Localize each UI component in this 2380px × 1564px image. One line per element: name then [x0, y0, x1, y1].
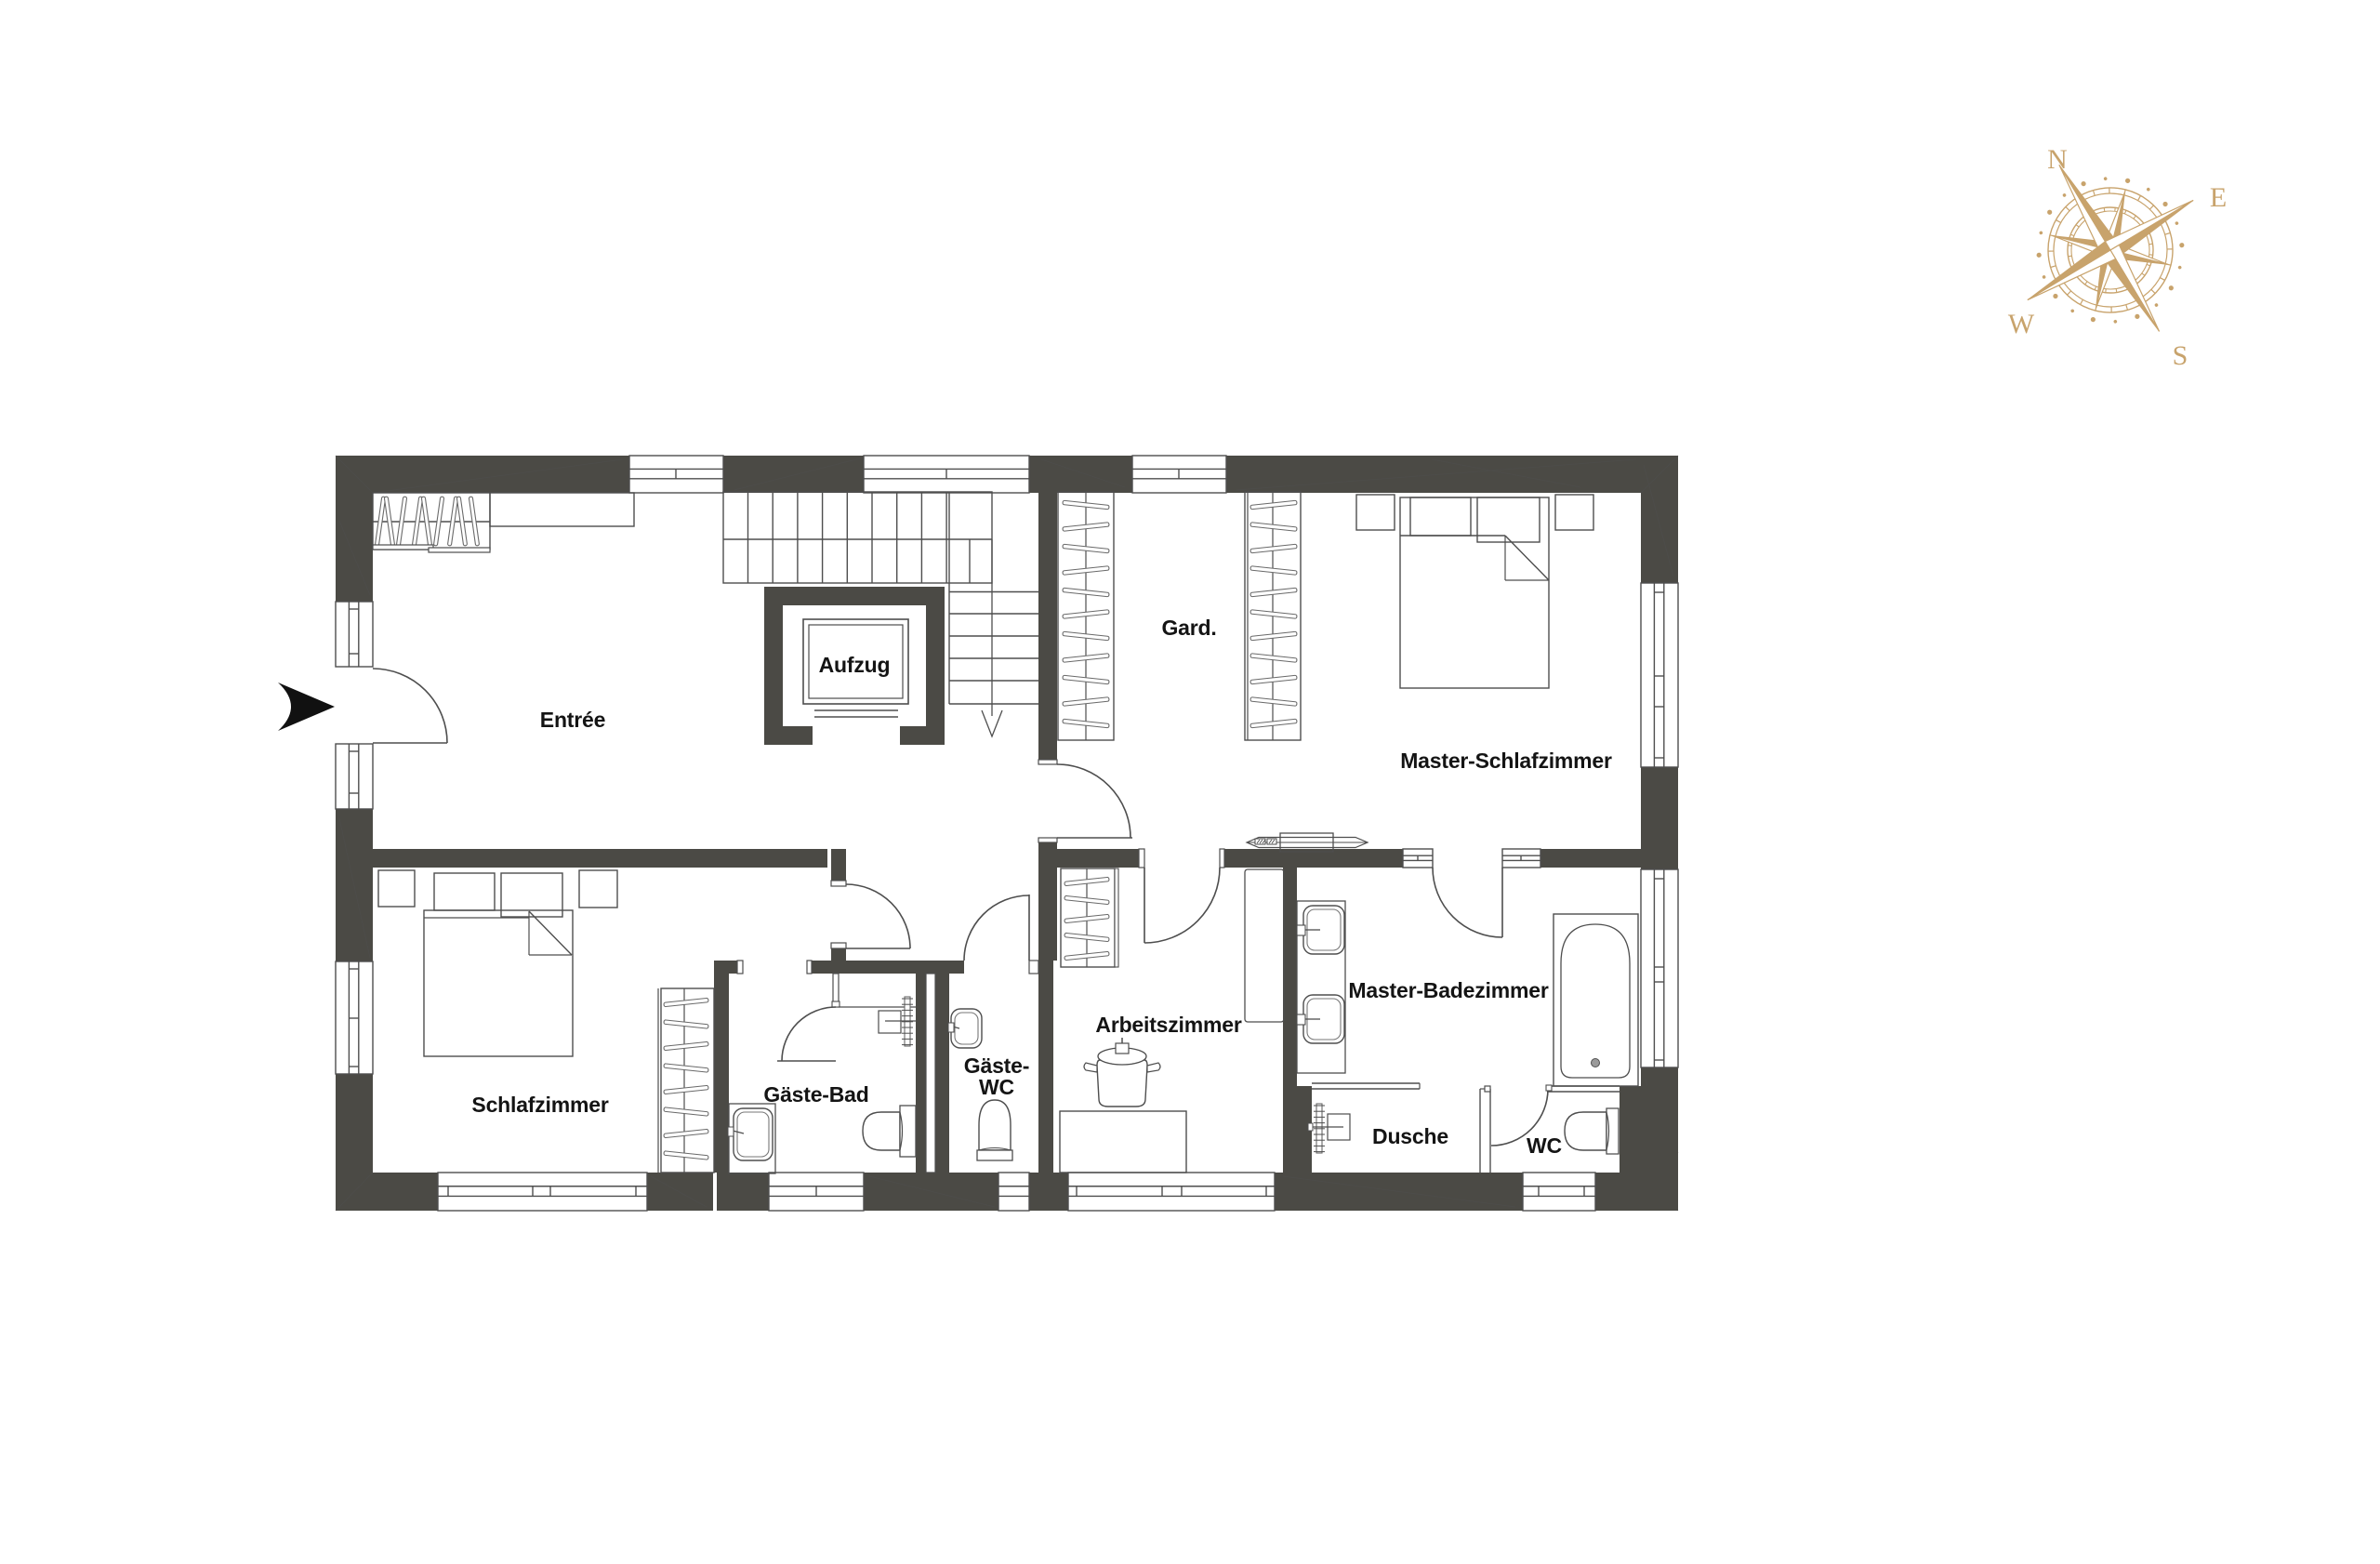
svg-text:Gard.: Gard. [1161, 616, 1216, 640]
svg-text:Aufzug: Aufzug [819, 653, 891, 677]
svg-text:S: S [2173, 340, 2188, 371]
svg-text:Entrée: Entrée [540, 708, 605, 732]
svg-text:Arbeitszimmer: Arbeitszimmer [1095, 1013, 1241, 1037]
svg-text:N: N [2047, 144, 2068, 175]
svg-text:Schlafzimmer: Schlafzimmer [471, 1093, 608, 1117]
svg-text:Master-Schlafzimmer: Master-Schlafzimmer [1400, 749, 1612, 773]
svg-text:W: W [2008, 309, 2035, 339]
svg-text:WC: WC [979, 1075, 1014, 1099]
svg-text:Master-Badezimmer: Master-Badezimmer [1348, 978, 1548, 1002]
svg-text:WC: WC [1527, 1133, 1562, 1158]
svg-text:Dusche: Dusche [1372, 1124, 1448, 1148]
svg-text:Gäste-Bad: Gäste-Bad [763, 1082, 868, 1107]
svg-text:E: E [2210, 182, 2227, 213]
